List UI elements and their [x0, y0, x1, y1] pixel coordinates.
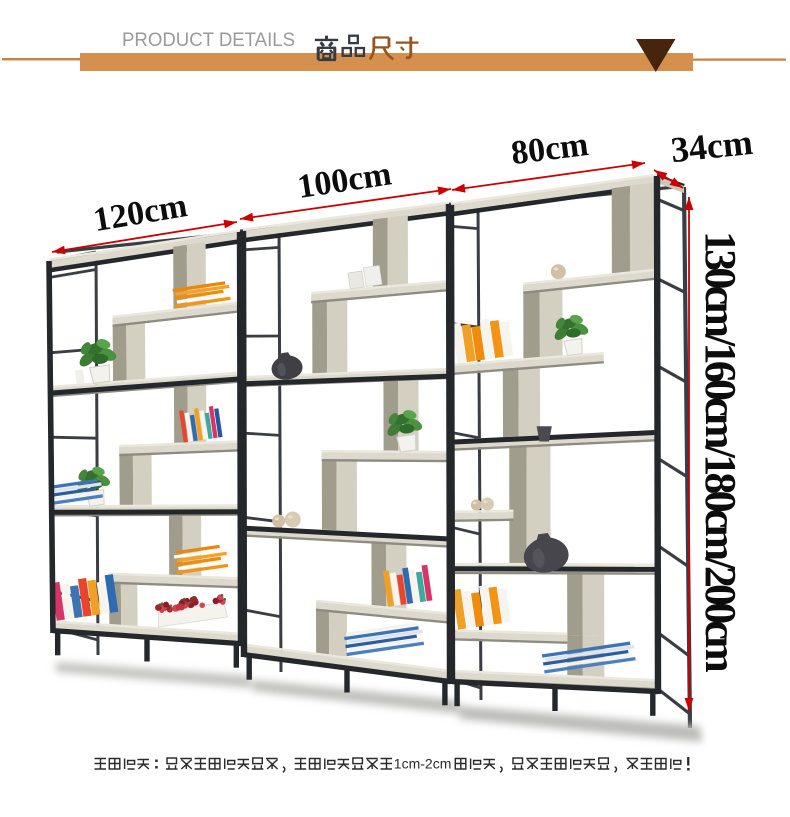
svg-text:PRODUCT DETAILS: PRODUCT DETAILS [122, 29, 295, 51]
svg-text:1cm-2cm: 1cm-2cm [394, 756, 452, 772]
svg-text:130cm/160cm/180cm/200cm: 130cm/160cm/180cm/200cm [696, 231, 745, 672]
svg-text:34cm: 34cm [669, 122, 755, 170]
